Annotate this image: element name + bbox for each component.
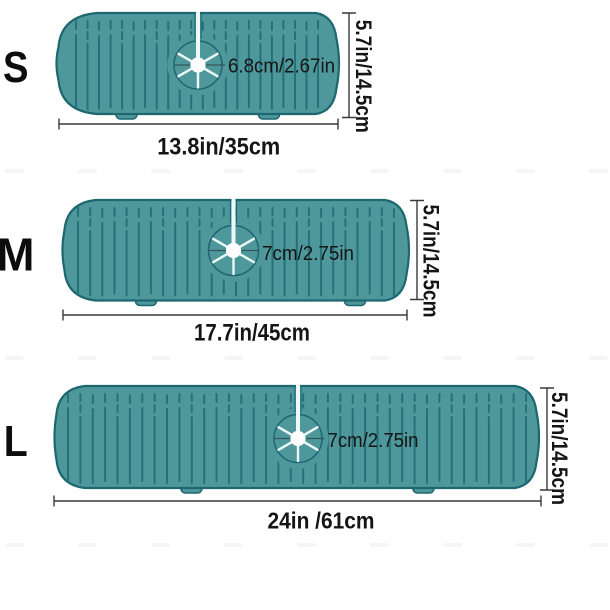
svg-text:17.7in/45cm: 17.7in/45cm	[194, 320, 310, 347]
svg-text:5.7in/14.5cm: 5.7in/14.5cm	[351, 20, 376, 133]
svg-text:7cm/2.75in: 7cm/2.75in	[262, 243, 354, 265]
svg-text:6.8cm/2.67in: 6.8cm/2.67in	[228, 56, 335, 78]
svg-text:L: L	[4, 418, 28, 466]
svg-text:S: S	[3, 44, 29, 92]
svg-text:M: M	[0, 229, 35, 281]
svg-text:7cm/2.75in: 7cm/2.75in	[328, 430, 419, 452]
svg-text:5.7in/14.5cm: 5.7in/14.5cm	[419, 205, 444, 318]
svg-text:5.7in/14.5cm: 5.7in/14.5cm	[547, 392, 572, 505]
svg-text:24in /61cm: 24in /61cm	[268, 508, 375, 534]
svg-text:13.8in/35cm: 13.8in/35cm	[157, 134, 280, 161]
